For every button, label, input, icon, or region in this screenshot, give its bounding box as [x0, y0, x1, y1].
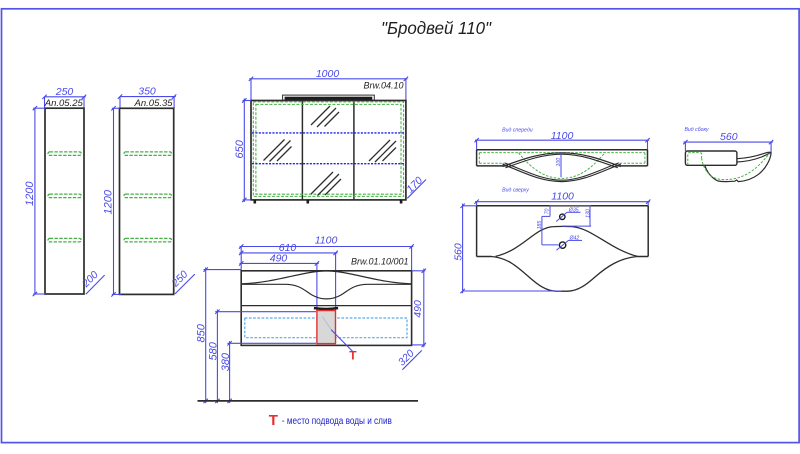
svg-text:1100: 1100: [551, 130, 574, 142]
svg-text:100: 100: [556, 158, 562, 167]
svg-text:580: 580: [208, 341, 220, 360]
svg-text:850: 850: [196, 323, 208, 342]
svg-text:560: 560: [453, 243, 465, 261]
svg-text:An.05.35: An.05.35: [134, 98, 174, 109]
svg-text:350: 350: [138, 86, 156, 98]
svg-text:1200: 1200: [24, 181, 36, 206]
svg-text:250: 250: [55, 86, 74, 98]
svg-text:560: 560: [720, 131, 738, 143]
svg-text:Вид сбоку: Вид сбоку: [684, 127, 708, 133]
svg-text:Brw.04.10: Brw.04.10: [363, 80, 403, 90]
svg-text:185: 185: [537, 221, 543, 230]
svg-text:"Бродвей 110": "Бродвей 110": [381, 18, 492, 38]
svg-text:1100: 1100: [551, 190, 574, 202]
svg-text:1000: 1000: [316, 68, 340, 80]
svg-text:Вид спереди: Вид спереди: [502, 127, 533, 133]
svg-text:Brw.01.10/001: Brw.01.10/001: [351, 257, 409, 267]
svg-text:An.05.25: An.05.25: [44, 98, 84, 109]
svg-text:- место подвода воды и слив: - место подвода воды и слив: [282, 416, 392, 427]
svg-text:Т: Т: [349, 349, 357, 363]
svg-text:Ø42: Ø42: [569, 235, 580, 241]
svg-text:1100: 1100: [315, 235, 338, 247]
svg-text:70: 70: [545, 209, 551, 215]
svg-text:380: 380: [220, 352, 232, 371]
svg-text:650: 650: [234, 139, 246, 158]
svg-text:490: 490: [412, 300, 424, 318]
svg-text:490: 490: [270, 253, 288, 265]
svg-text:Т: Т: [269, 412, 278, 429]
svg-text:130: 130: [586, 209, 592, 218]
svg-text:Вид сверху: Вид сверху: [502, 188, 529, 194]
svg-text:1200: 1200: [103, 189, 115, 214]
svg-text:Ø35: Ø35: [568, 207, 579, 213]
